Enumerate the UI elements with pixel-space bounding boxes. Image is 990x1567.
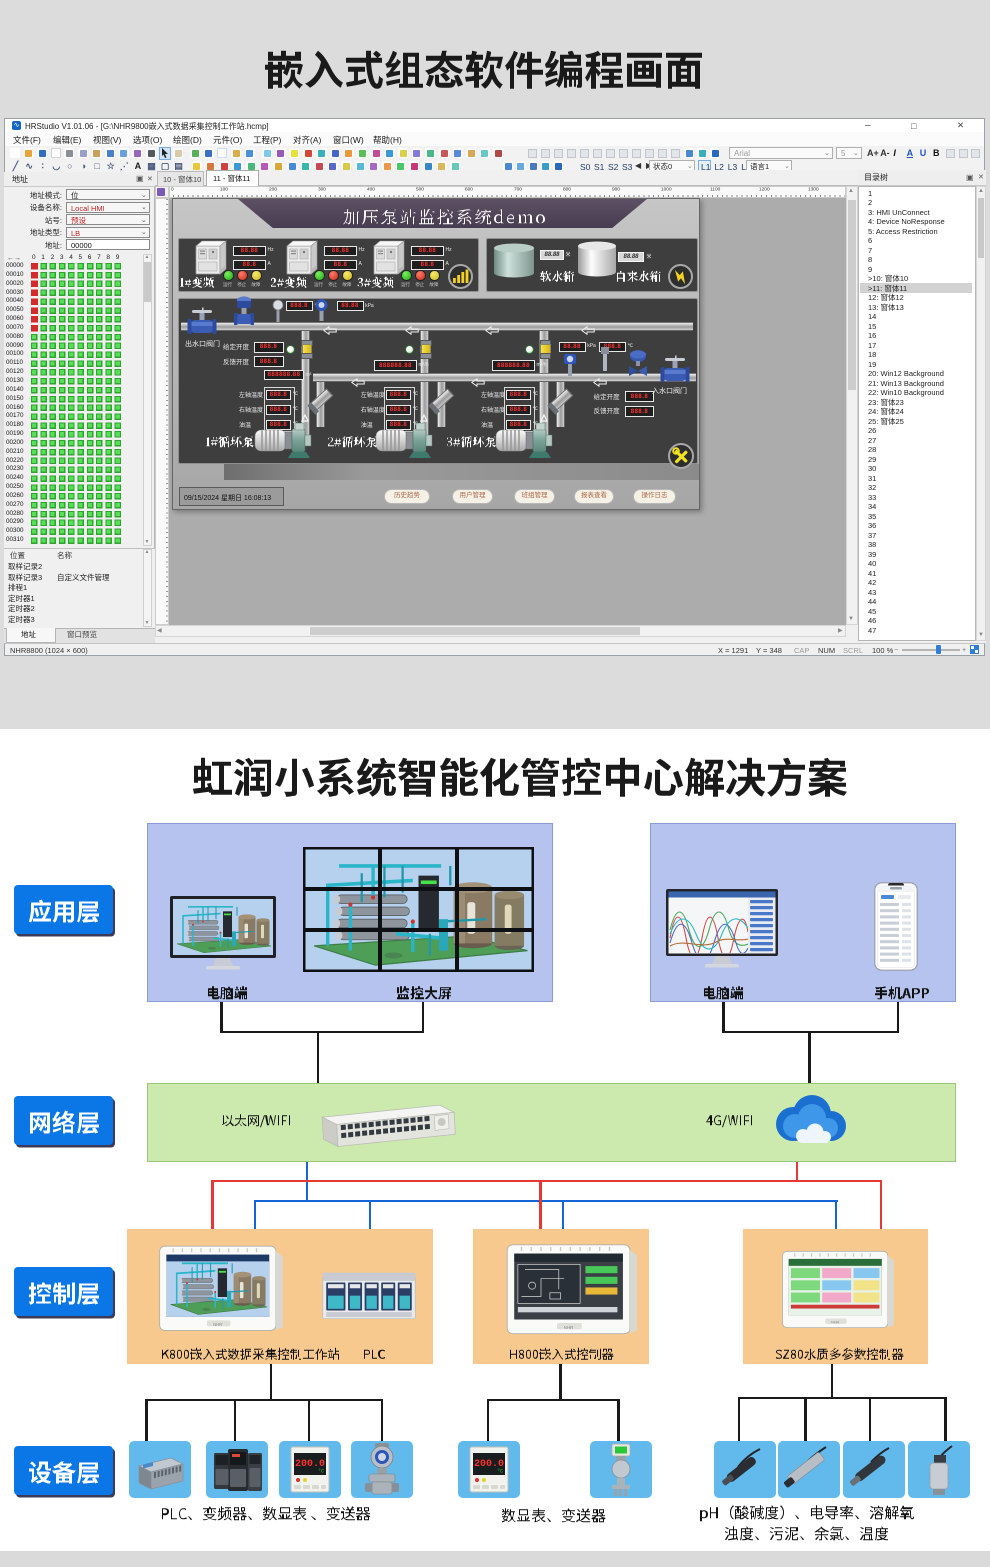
svg-text:NHR: NHR [564, 1325, 574, 1330]
svg-text:°C: °C [318, 1469, 324, 1475]
svg-text:°C: °C [497, 1469, 503, 1475]
svg-text:NHR: NHR [213, 1322, 222, 1327]
svg-text:NHR: NHR [831, 1320, 839, 1324]
